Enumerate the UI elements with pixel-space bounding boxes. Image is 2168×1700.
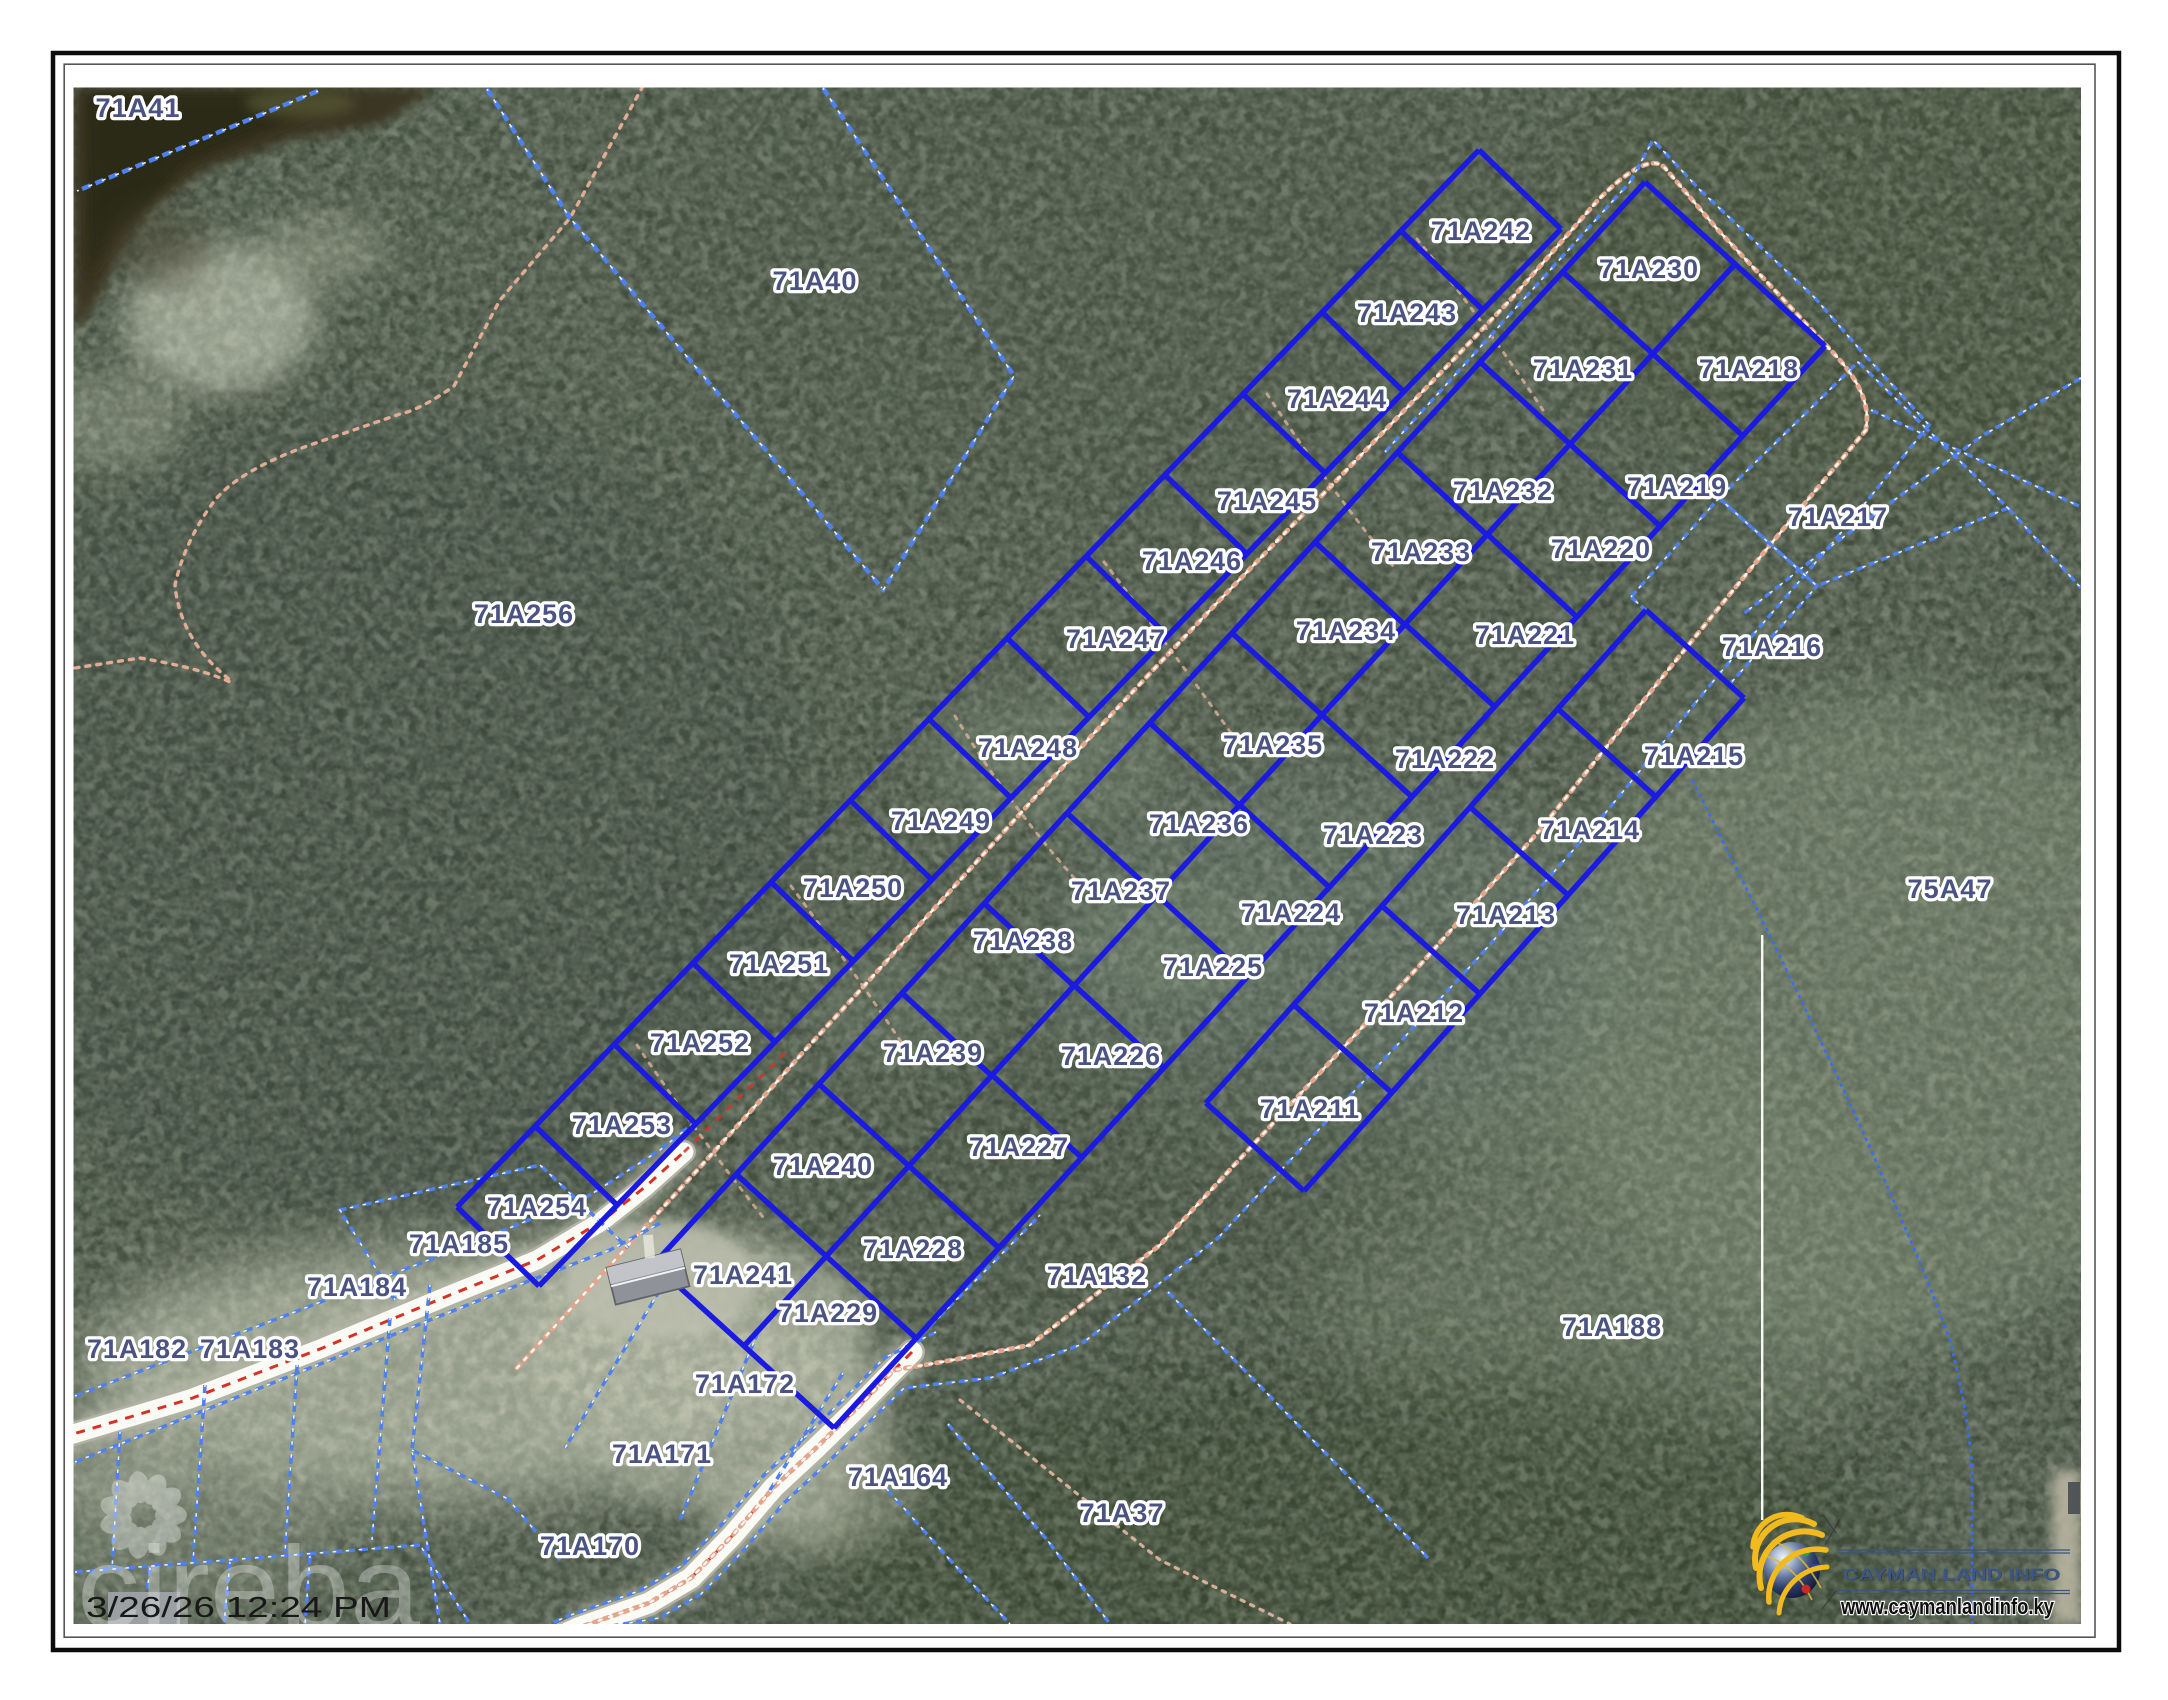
svg-text:71A164: 71A164 bbox=[848, 1462, 948, 1492]
svg-text:71A246: 71A246 bbox=[1142, 546, 1242, 576]
svg-text:71A182: 71A182 bbox=[87, 1334, 187, 1364]
svg-text:71A234: 71A234 bbox=[1296, 616, 1396, 646]
svg-text:71A235: 71A235 bbox=[1223, 730, 1323, 760]
svg-text:71A250: 71A250 bbox=[803, 873, 903, 903]
svg-text:71A216: 71A216 bbox=[1722, 632, 1822, 662]
svg-text:71A172: 71A172 bbox=[695, 1369, 795, 1399]
svg-text:71A236: 71A236 bbox=[1149, 809, 1249, 839]
svg-text:71A185: 71A185 bbox=[409, 1229, 509, 1259]
svg-text:71A252: 71A252 bbox=[650, 1028, 750, 1058]
svg-text:71A223: 71A223 bbox=[1323, 820, 1423, 850]
svg-text:71A211: 71A211 bbox=[1260, 1094, 1360, 1124]
svg-text:71A253: 71A253 bbox=[572, 1110, 672, 1140]
svg-text:71A40: 71A40 bbox=[773, 266, 858, 296]
svg-text:71A217: 71A217 bbox=[1788, 502, 1888, 532]
svg-text:71A225: 71A225 bbox=[1163, 952, 1263, 982]
svg-text:71A183: 71A183 bbox=[200, 1334, 300, 1364]
svg-text:71A219: 71A219 bbox=[1627, 472, 1727, 502]
svg-text:71A228: 71A228 bbox=[863, 1234, 963, 1264]
svg-text:71A237: 71A237 bbox=[1071, 876, 1171, 906]
svg-text:71A170: 71A170 bbox=[540, 1531, 640, 1561]
svg-text:71A188: 71A188 bbox=[1562, 1312, 1662, 1342]
svg-text:71A251: 71A251 bbox=[729, 949, 829, 979]
svg-text:71A213: 71A213 bbox=[1456, 900, 1556, 930]
svg-text:71A224: 71A224 bbox=[1241, 898, 1341, 928]
svg-text:71A171: 71A171 bbox=[612, 1439, 712, 1469]
svg-text:71A218: 71A218 bbox=[1699, 354, 1799, 384]
svg-text:3/26/26 12:24 PM: 3/26/26 12:24 PM bbox=[86, 1592, 391, 1624]
svg-text:71A238: 71A238 bbox=[973, 926, 1073, 956]
svg-text:71A226: 71A226 bbox=[1061, 1041, 1161, 1071]
svg-text:75A47: 75A47 bbox=[1908, 874, 1993, 904]
svg-text:71A249: 71A249 bbox=[891, 806, 991, 836]
svg-text:71A227: 71A227 bbox=[969, 1132, 1069, 1162]
svg-text:71A221: 71A221 bbox=[1475, 620, 1575, 650]
svg-text:71A214: 71A214 bbox=[1540, 815, 1640, 845]
svg-text:71A231: 71A231 bbox=[1533, 354, 1633, 384]
svg-text:71A247: 71A247 bbox=[1066, 624, 1166, 654]
svg-text:71A232: 71A232 bbox=[1453, 476, 1553, 506]
svg-text:www.caymanlandinfo.ky: www.caymanlandinfo.ky bbox=[1840, 1594, 2054, 1619]
svg-text:71A229: 71A229 bbox=[778, 1298, 878, 1328]
svg-text:71A248: 71A248 bbox=[978, 733, 1078, 763]
svg-text:71A254: 71A254 bbox=[487, 1192, 587, 1222]
svg-text:71A215: 71A215 bbox=[1644, 741, 1744, 771]
svg-text:71A243: 71A243 bbox=[1357, 298, 1457, 328]
svg-text:71A222: 71A222 bbox=[1395, 744, 1495, 774]
svg-text:71A184: 71A184 bbox=[307, 1272, 407, 1302]
svg-text:71A37: 71A37 bbox=[1080, 1498, 1165, 1528]
svg-text:71A240: 71A240 bbox=[773, 1151, 873, 1181]
svg-text:71A256: 71A256 bbox=[474, 599, 574, 629]
svg-text:71A212: 71A212 bbox=[1364, 998, 1464, 1028]
svg-text:71A241: 71A241 bbox=[693, 1260, 793, 1290]
svg-text:71A242: 71A242 bbox=[1431, 216, 1531, 246]
svg-text:71A230: 71A230 bbox=[1599, 254, 1699, 284]
svg-text:71A244: 71A244 bbox=[1287, 384, 1387, 414]
svg-text:71A220: 71A220 bbox=[1551, 534, 1651, 564]
svg-text:CAYMAN LAND INFO: CAYMAN LAND INFO bbox=[1843, 1566, 2060, 1584]
svg-text:71A239: 71A239 bbox=[883, 1038, 983, 1068]
svg-text:71A132: 71A132 bbox=[1047, 1261, 1147, 1291]
svg-text:71A41: 71A41 bbox=[96, 93, 181, 123]
svg-text:71A245: 71A245 bbox=[1217, 486, 1317, 516]
svg-text:71A233: 71A233 bbox=[1371, 537, 1471, 567]
